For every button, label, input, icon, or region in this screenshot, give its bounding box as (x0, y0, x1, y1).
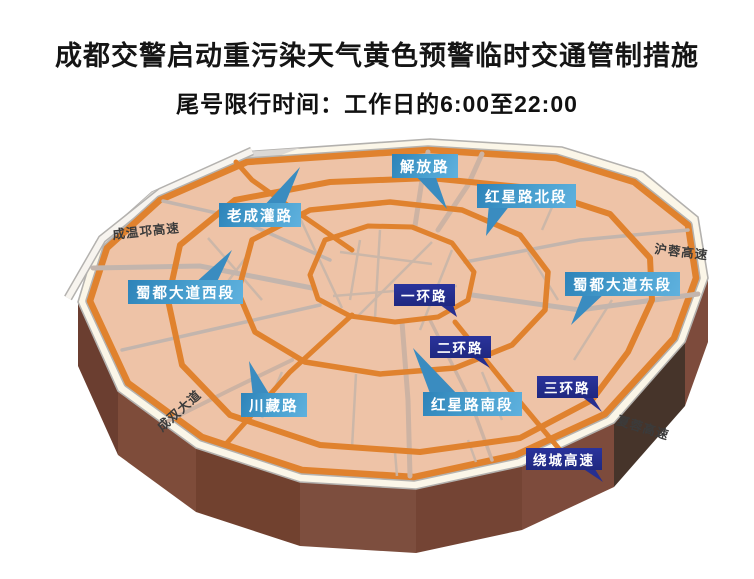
label-raocheng-expressway: 绕城高速 (526, 448, 602, 470)
label-hongxing-road-north: 红星路北段 (477, 184, 576, 208)
page-subtitle: 尾号限行时间：工作日的6:00至22:00 (0, 85, 754, 119)
label-chuanzang-road: 川藏路 (241, 393, 307, 417)
label-third-ring-road: 三环路 (537, 376, 598, 398)
label-hongxing-road-south: 红星路南段 (423, 392, 522, 416)
label-shudu-avenue-west: 蜀都大道西段 (128, 280, 243, 304)
page-title: 成都交警启动重污染天气黄色预警临时交通管制措施 (0, 34, 754, 73)
header: 成都交警启动重污染天气黄色预警临时交通管制措施 尾号限行时间：工作日的6:00至… (0, 0, 754, 119)
label-jiefang-road: 解放路 (392, 154, 458, 178)
label-first-ring-road: 一环路 (394, 284, 455, 306)
label-shudu-avenue-east: 蜀都大道东段 (565, 272, 680, 296)
label-laochengguan-road: 老成灌路 (219, 203, 301, 227)
label-second-ring-road: 二环路 (430, 336, 491, 358)
